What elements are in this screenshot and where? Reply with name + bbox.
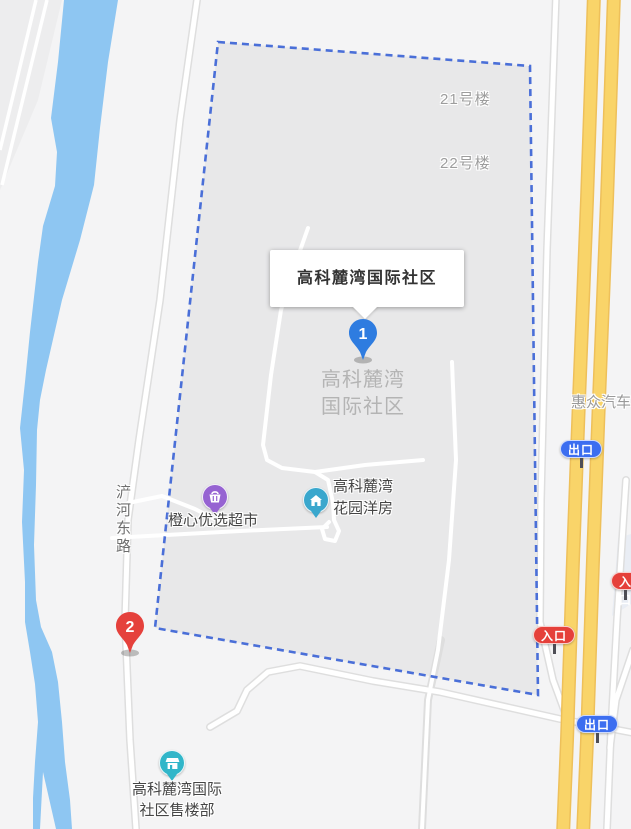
sign-label: 入口 [541, 629, 567, 643]
sign-exit-top[interactable]: 出口 [560, 440, 602, 458]
infobox[interactable]: 高科麓湾国际社区 [270, 250, 464, 307]
marker-2-pin[interactable]: 2 [114, 611, 146, 657]
poi-label-line2: 社区售楼部 [122, 800, 232, 821]
sign-pole [580, 458, 583, 468]
sign-exit-bottom[interactable]: 出口 [576, 715, 618, 733]
poi-dot [202, 484, 228, 510]
poi-label-supermarket[interactable]: 橙心优选超市 [158, 510, 268, 531]
poi-label-sales-office[interactable]: 高科麓湾国际 社区售楼部 [122, 779, 232, 821]
sign-pole [553, 644, 556, 654]
poi-tip [311, 511, 321, 523]
sign-pole [596, 733, 599, 743]
poi-label-garden-homes[interactable]: 高科麓湾 花园洋房 [333, 476, 393, 520]
area-label: 高科麓湾 国际社区 [311, 367, 415, 421]
road-label-chanhedonglu: 浐河东路 [112, 484, 133, 556]
building-label-22: 22号楼 [440, 152, 491, 173]
poi-label-line2: 花园洋房 [333, 498, 393, 520]
marker-2-number: 2 [126, 619, 135, 636]
poi-label-line1: 高科麓湾国际 [122, 779, 232, 800]
storefront-icon [165, 757, 180, 770]
poi-dot [159, 750, 185, 776]
map-canvas[interactable]: 21号楼 22号楼 惠众汽车 浐河东路 高科麓湾 国际社区 高科麓湾国际社区 1… [0, 0, 631, 829]
area-label-line2: 国际社区 [311, 394, 415, 421]
building-label-21: 21号楼 [440, 88, 491, 109]
sign-entry-left[interactable]: 入口 [533, 626, 575, 644]
business-label-huizhong: 惠众汽车 [571, 391, 631, 412]
poi-dot [303, 487, 329, 513]
supermarket-icon [207, 490, 223, 504]
sign-entry-right[interactable]: 入口 [611, 572, 631, 590]
marker-1-pin[interactable]: 1 [347, 318, 379, 364]
pin-balloon-icon: 2 [114, 611, 146, 657]
sign-label: 出口 [568, 443, 594, 457]
marker-1-number: 1 [359, 326, 368, 343]
poi-label-line1: 高科麓湾 [333, 476, 393, 498]
pin-balloon-icon: 1 [347, 318, 379, 364]
infobox-title: 高科麓湾国际社区 [297, 270, 437, 287]
sign-label: 出口 [584, 718, 610, 732]
area-label-line1: 高科麓湾 [311, 367, 415, 394]
house-icon [309, 494, 323, 507]
sign-pole [624, 590, 627, 600]
poi-marker-garden-homes[interactable] [303, 487, 329, 523]
